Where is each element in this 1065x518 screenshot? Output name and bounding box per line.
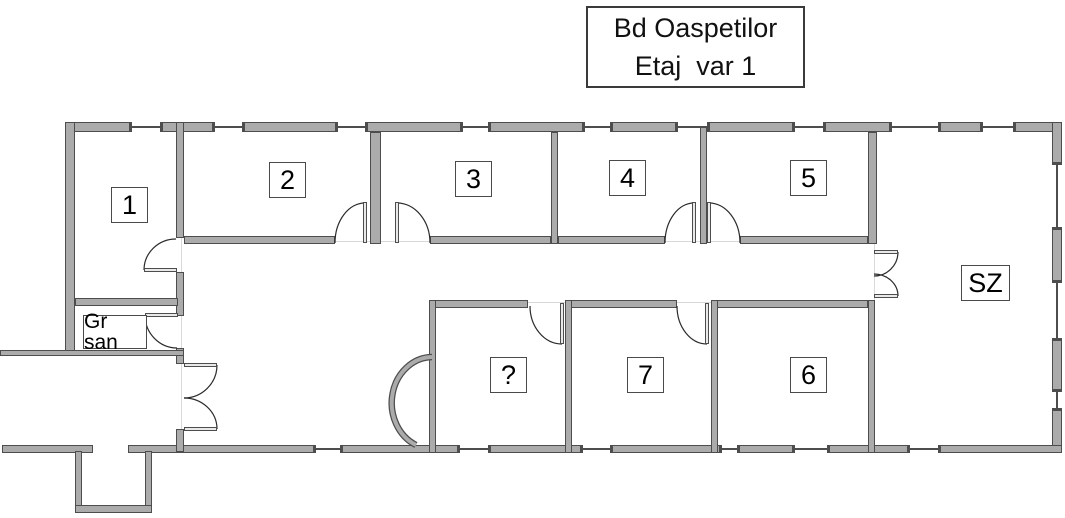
- door-leaf: [707, 202, 711, 243]
- threshold-line: [181, 238, 182, 452]
- room-label-text: Gr san: [84, 311, 146, 353]
- door-arc-room1: [144, 239, 176, 270]
- wall-segment: [75, 505, 152, 513]
- room-label-1: 1: [111, 187, 148, 223]
- wall-segment: [429, 300, 436, 453]
- room-label-3: 3: [455, 161, 492, 197]
- room-label-text: 6: [801, 362, 816, 389]
- window: [313, 445, 343, 453]
- door-leaf: [184, 427, 217, 431]
- room-label-text: 4: [620, 165, 635, 192]
- room-label-sz: SZ: [961, 265, 1010, 301]
- wall-segment: [242, 122, 338, 132]
- window: [212, 122, 245, 132]
- door-arc-room2: [335, 203, 365, 243]
- door-arc-gr-san: [145, 315, 177, 348]
- room-label-2: 2: [269, 162, 306, 198]
- door-arcs: [0, 0, 1065, 518]
- door-leaf: [145, 313, 178, 317]
- room-label-text: 3: [466, 166, 481, 193]
- door-leaf: [560, 303, 564, 344]
- wall-segment: [707, 122, 795, 132]
- window: [980, 122, 1016, 132]
- window: [457, 445, 491, 453]
- room-label-7: 7: [627, 357, 664, 393]
- wall-segment: [700, 127, 707, 244]
- window: [792, 122, 826, 132]
- wall-segment: [1052, 338, 1062, 392]
- door-leaf: [395, 202, 399, 243]
- room-label-text: 5: [801, 165, 816, 192]
- wall-segment: [938, 445, 1062, 453]
- wall-segment: [65, 122, 132, 132]
- door-leaf: [874, 250, 898, 254]
- title-line-1: Bd Oaspetilor: [614, 12, 778, 44]
- door-leaf: [363, 202, 367, 243]
- window: [335, 122, 368, 132]
- wall-segment: [558, 236, 665, 244]
- room-label-6: 6: [790, 357, 827, 393]
- wall-segment: [737, 445, 795, 453]
- wall-segment: [160, 122, 215, 132]
- window: [792, 445, 830, 453]
- room-label-text: 7: [638, 362, 653, 389]
- window: [675, 122, 710, 132]
- wall-segment: [488, 122, 585, 132]
- room-label-5: 5: [790, 160, 827, 196]
- window: [1052, 280, 1062, 341]
- double-door-arc-lobby: [184, 398, 217, 429]
- wall-segment: [176, 272, 184, 316]
- door-leaf: [705, 303, 709, 344]
- door-leaf: [184, 363, 217, 367]
- window: [1052, 389, 1062, 411]
- wall-segment: [610, 122, 678, 132]
- door-arc-room3: [397, 203, 430, 243]
- wall-segment: [823, 122, 892, 132]
- title-line-2: Etaj var 1: [635, 50, 757, 82]
- window: [582, 122, 613, 132]
- wall-segment: [868, 132, 877, 244]
- wall-segment: [1052, 227, 1062, 283]
- window: [719, 445, 740, 453]
- curved-wall-outline: [392, 357, 432, 445]
- door-arc-room5: [709, 203, 740, 243]
- wall-segment: [176, 429, 184, 452]
- wall-segment: [938, 122, 983, 132]
- room-label-text: ?: [501, 362, 516, 389]
- door-leaf: [144, 268, 177, 272]
- wall-segment: [1052, 122, 1062, 165]
- room-label-gr-san: Gr san: [83, 315, 147, 349]
- room-label-unknown: ?: [490, 357, 527, 393]
- double-door-arc-sz: [874, 252, 898, 276]
- door-leaf: [874, 294, 898, 298]
- wall-segment: [565, 300, 677, 308]
- window: [460, 122, 491, 132]
- room-label-text: 1: [122, 192, 137, 219]
- wall-segment: [711, 300, 718, 453]
- wall-segment: [429, 300, 528, 308]
- wall-segment: [740, 236, 868, 244]
- wall-segment: [370, 132, 381, 244]
- wall-segment: [340, 445, 460, 453]
- room-label-text: SZ: [968, 270, 1003, 297]
- room-label-text: 2: [280, 167, 295, 194]
- floor-plan: 1 2 3 4 5 ? 7 6 SZ Gr san Bd Oaspetilor …: [0, 0, 1065, 518]
- window: [580, 445, 613, 453]
- curved-wall: [392, 357, 432, 445]
- title-box: Bd Oaspetilor Etaj var 1: [586, 6, 805, 88]
- door-arc-room7: [677, 306, 707, 344]
- door-leaf: [692, 202, 696, 243]
- wall-segment: [711, 300, 868, 308]
- double-door-arc-sz: [874, 274, 898, 296]
- wall-segment: [184, 236, 335, 244]
- wall-segment: [565, 300, 572, 453]
- wall-segment: [145, 451, 152, 509]
- door-arc-room4: [665, 203, 694, 243]
- wall-segment: [610, 445, 722, 453]
- wall-segment: [430, 236, 551, 244]
- wall-segment: [551, 132, 558, 244]
- window: [889, 122, 941, 132]
- window: [907, 445, 941, 453]
- wall-segment: [365, 122, 463, 132]
- double-door-arc-lobby: [184, 365, 217, 398]
- wall-segment: [75, 451, 82, 509]
- window: [1052, 162, 1062, 230]
- wall-segment: [128, 445, 316, 453]
- wall-segment: [75, 298, 178, 306]
- window: [129, 122, 163, 132]
- door-arc-room-unknown: [530, 306, 562, 344]
- wall-segment: [176, 122, 184, 238]
- wall-segment: [65, 122, 75, 356]
- room-label-4: 4: [609, 160, 646, 196]
- wall-segment: [868, 300, 875, 453]
